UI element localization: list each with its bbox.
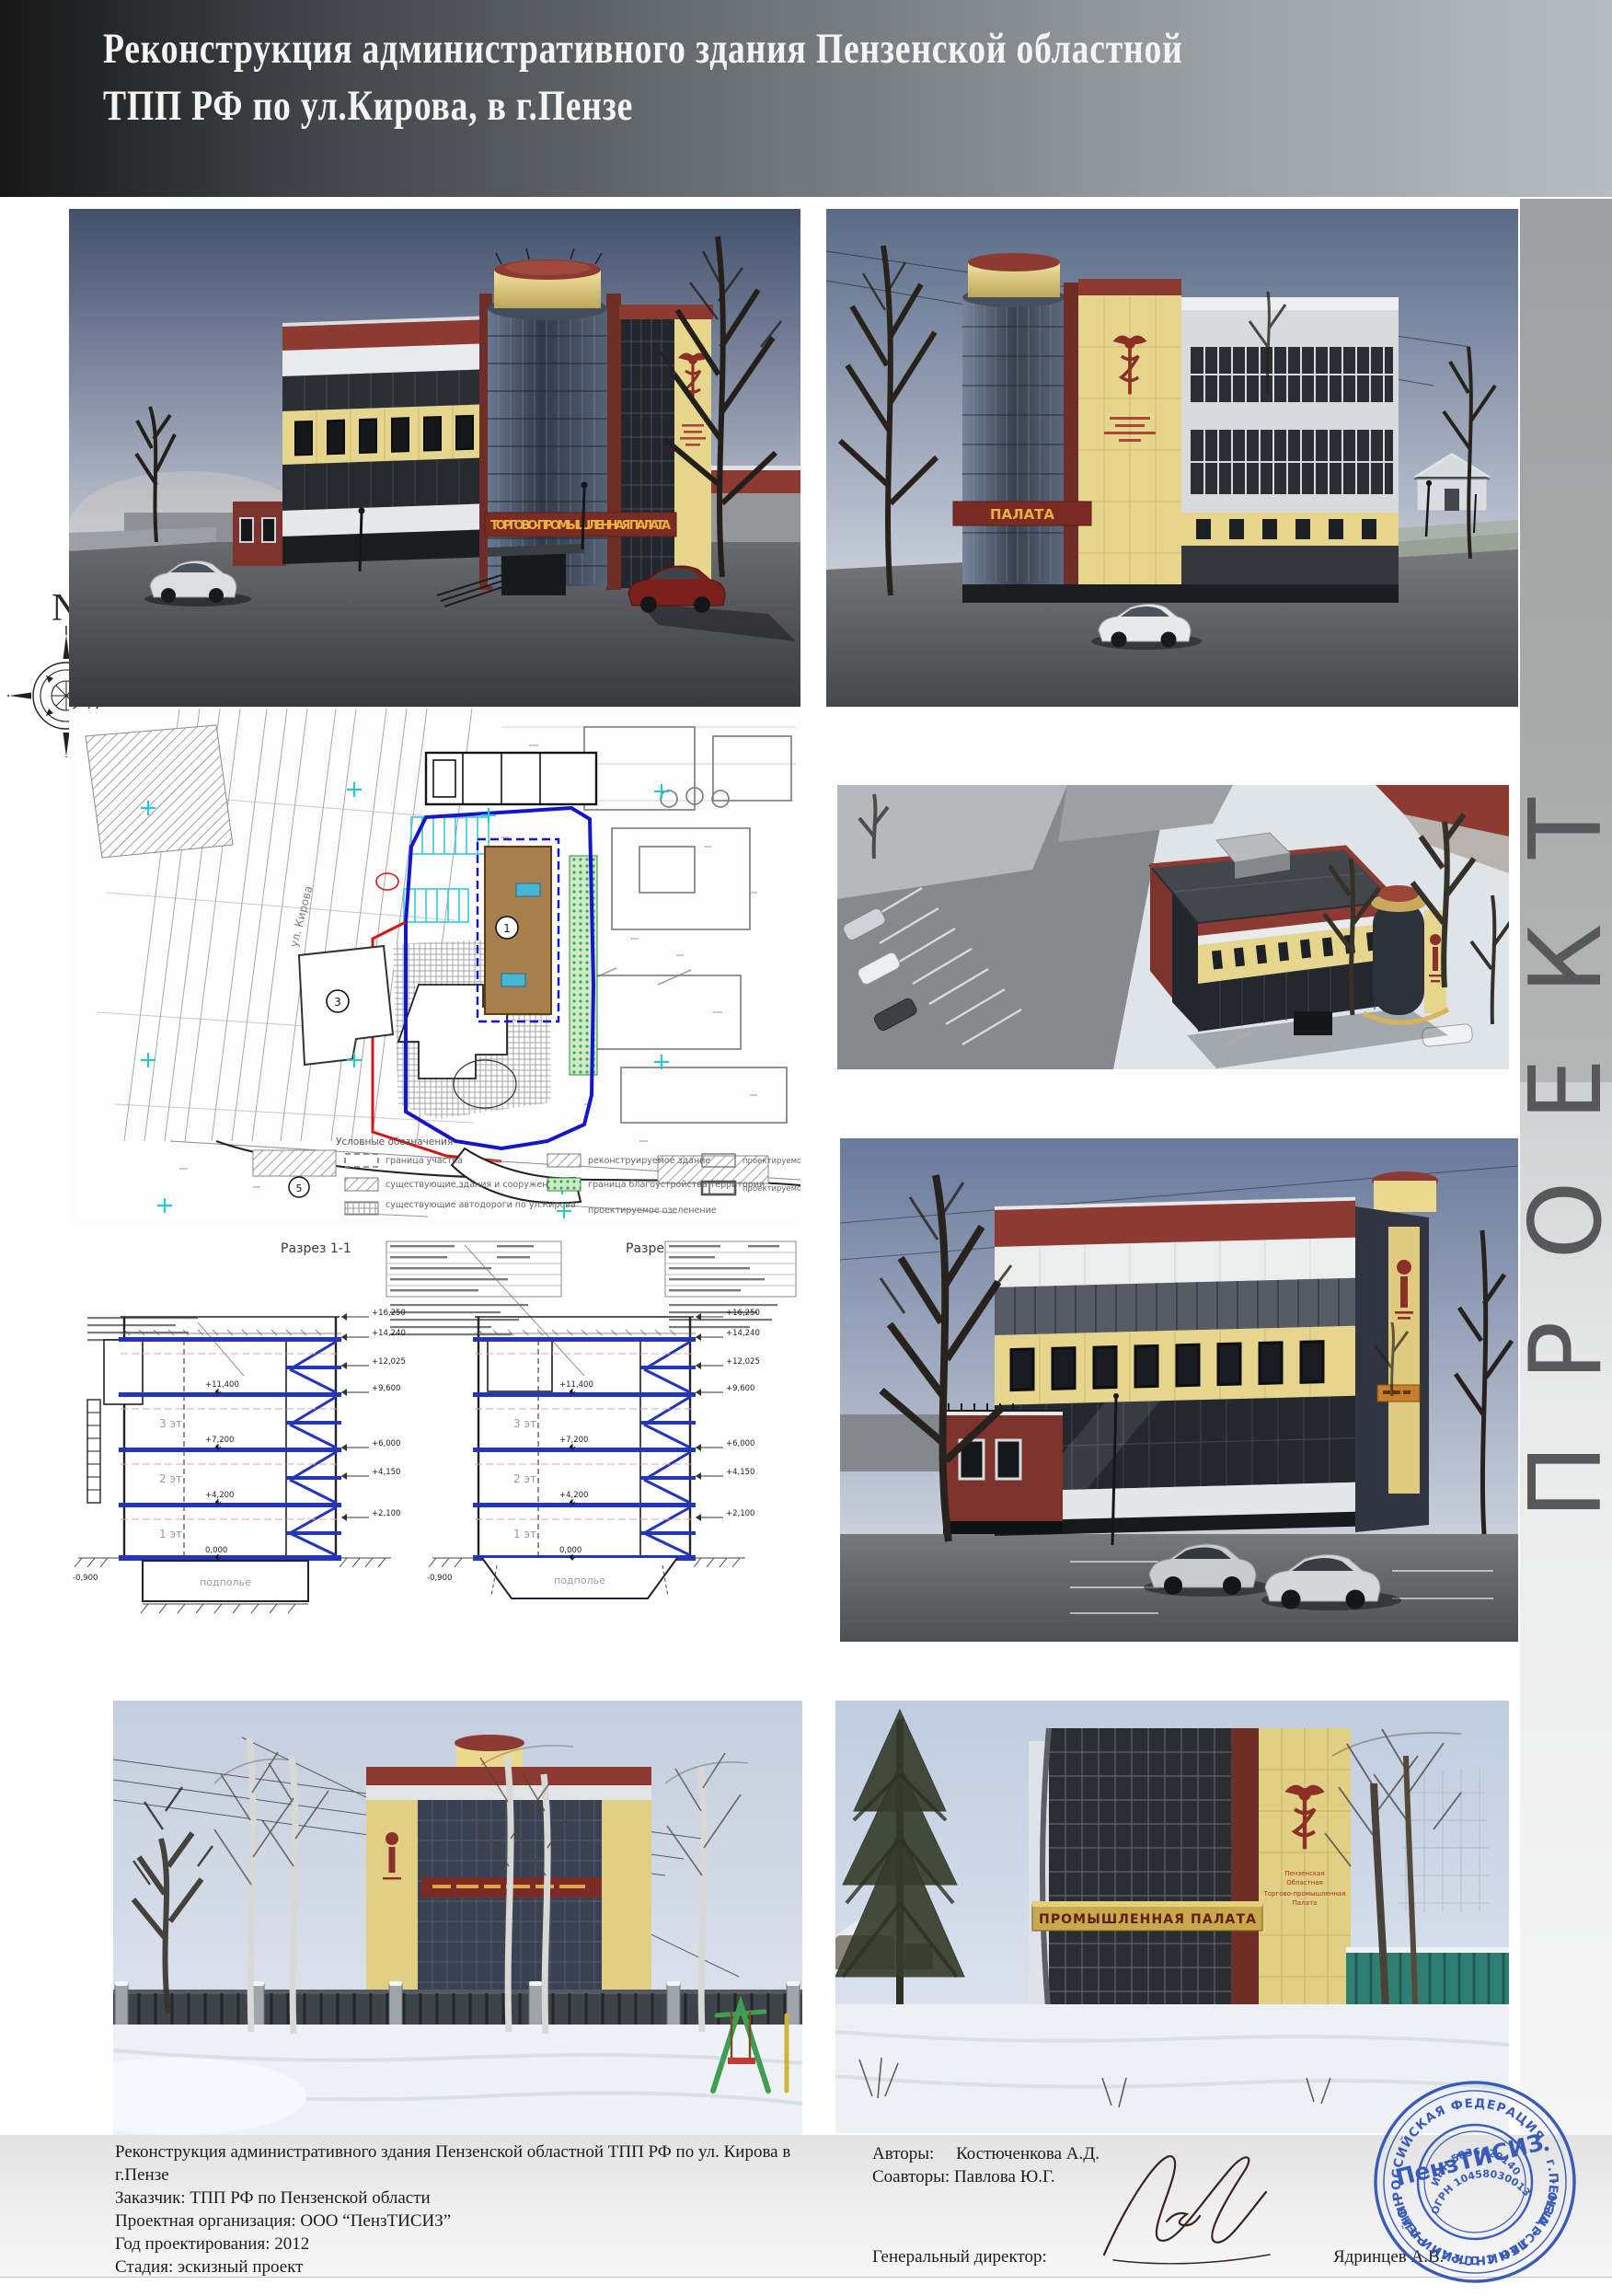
photo-montage-left — [113, 1701, 802, 2135]
render-front-view: ТОРГОВО-ПРОМЫШЛЕННАЯ ПАЛАТА — [69, 209, 800, 707]
footer-customer: Заказчик: ТПП РФ по Пензенской области — [115, 2186, 879, 2209]
proekt-letter-e: Е — [1509, 1042, 1612, 1137]
svg-text:Палата: Палата — [1293, 1899, 1318, 1907]
existing-buildings — [426, 753, 596, 804]
svg-text:+11,400: +11,400 — [559, 1380, 593, 1390]
svg-text:+4,200: +4,200 — [559, 1491, 588, 1500]
svg-text:+12,025: +12,025 — [372, 1357, 406, 1367]
hatched-block — [86, 725, 233, 858]
background-buildings — [840, 1414, 950, 1471]
sections-drawings: Разрез 1-1 Разрез 2-2 — [69, 1238, 800, 1689]
footer-project-info: Реконструкция административного здания П… — [115, 2140, 879, 2279]
svg-text:0,000: 0,000 — [205, 1546, 227, 1555]
svg-text:2 эт: 2 эт — [513, 1472, 536, 1485]
svg-text:+14,240: +14,240 — [372, 1329, 406, 1338]
footer-org: Проектная организация: ООО “ПензТИСИЗ” — [115, 2209, 879, 2233]
page-title: Реконструкция административного здания П… — [103, 20, 1453, 134]
svg-text:+7,200: +7,200 — [559, 1436, 588, 1445]
signature — [1086, 2137, 1307, 2270]
svg-text:+11,400: +11,400 — [205, 1380, 239, 1390]
svg-text:+16,250: +16,250 — [726, 1309, 760, 1318]
svg-text:граница благоустройства террит: граница благоустройства территории — [588, 1180, 765, 1190]
footer-authors: Авторы: Костюченкова А.Д. — [872, 2142, 1100, 2165]
svg-text:+7,200: +7,200 — [205, 1436, 234, 1445]
svg-text:1 эт: 1 эт — [159, 1528, 182, 1540]
render-back-view: ПАЛАТА — [826, 209, 1518, 707]
footer-stage: Стадия: эскизный проект — [115, 2256, 879, 2279]
footer-director-label: Генеральный директор: — [872, 2245, 1047, 2268]
building-sign-text: ТОРГОВО-ПРОМЫШЛЕННАЯ ПАЛАТА — [490, 519, 671, 533]
svg-text:+2,100: +2,100 — [372, 1509, 400, 1518]
new-building-footprint: 1 — [478, 839, 558, 1021]
svg-text:+4,150: +4,150 — [372, 1468, 400, 1477]
svg-text:подполье: подполье — [200, 1576, 251, 1588]
svg-text:проектируемое озеленение: проектируемое озеленение — [588, 1206, 717, 1216]
svg-text:проектируемое здание: проектируемое здание — [743, 1184, 800, 1194]
fence-teal — [1346, 1947, 1509, 2004]
svg-text:+4,200: +4,200 — [205, 1491, 234, 1500]
svg-text:+16,250: +16,250 — [372, 1309, 406, 1318]
poster-page: Реконструкция административного здания П… — [0, 0, 1612, 2296]
render-aerial-view — [837, 785, 1509, 1069]
svg-text:проектируемое основание: проектируемое основание — [743, 1157, 800, 1166]
svg-text:3: 3 — [334, 996, 341, 1009]
svg-text:Пензенская: Пензенская — [1284, 1870, 1324, 1877]
svg-text:3 эт: 3 эт — [513, 1417, 536, 1430]
building-sign-text: ПАЛАТА — [990, 506, 1054, 523]
title-line-2: ТПП РФ по ул.Кирова, в г.Пензе — [103, 77, 633, 134]
svg-text:+2,100: +2,100 — [726, 1509, 754, 1518]
building-sign-text: ПРОМЫШЛЕННАЯ ПАЛАТА — [1039, 1912, 1256, 1927]
section-1-title: Разрез 1-1 — [281, 1241, 351, 1256]
svg-text:0,000: 0,000 — [559, 1546, 581, 1555]
footer-coauthors: Соавторы: Павлова Ю.Г. — [872, 2165, 1055, 2188]
svg-text:подполье: подполье — [554, 1575, 605, 1586]
legend-title: Условные обозначения — [336, 1136, 453, 1148]
svg-text:2 эт: 2 эт — [159, 1472, 182, 1485]
svg-text:+14,240: +14,240 — [726, 1329, 760, 1338]
svg-text:реконструируемое здание: реконструируемое здание — [588, 1156, 710, 1166]
svg-text:-0,900: -0,900 — [427, 1574, 452, 1583]
footer-line-1: Реконструкция административного здания П… — [115, 2140, 879, 2163]
header-bar: Реконструкция административного здания П… — [0, 0, 1612, 197]
building-montage: Пензенская Областная Торгово-промышленна… — [1029, 1728, 1351, 2032]
svg-text:1 эт: 1 эт — [513, 1528, 536, 1540]
authors-name: Костюченкова А.Д. — [956, 2144, 1100, 2163]
title-line-1: Реконструкция административного здания П… — [103, 20, 1183, 77]
svg-text:-0,900: -0,900 — [73, 1574, 98, 1583]
render-side-view — [840, 1138, 1518, 1642]
proekt-letter-r: Р — [1509, 1303, 1612, 1399]
authors-label: Авторы: — [872, 2144, 934, 2163]
proekt-letter-p: П — [1509, 1434, 1612, 1529]
proekt-letter-o: О — [1509, 1172, 1612, 1268]
svg-text:+9,600: +9,600 — [726, 1384, 754, 1393]
svg-text:существующие здания и сооружен: существующие здания и сооружения — [386, 1180, 558, 1190]
site-plan-legend: Условные обозначения граница участка сущ… — [69, 1134, 800, 1235]
svg-text:граница участка: граница участка — [386, 1156, 463, 1166]
svg-text:3 эт: 3 эт — [159, 1417, 182, 1430]
svg-text:Областная: Областная — [1286, 1879, 1323, 1886]
proekt-letter-k: К — [1509, 911, 1612, 1007]
proekt-letter-t: Т — [1509, 780, 1612, 876]
building-back: ПАЛАТА — [953, 253, 1399, 603]
building-side — [943, 1171, 1438, 1536]
stamp-seal: РОССИЙСКАЯ ФЕДЕРАЦИЯ • г.ПЕНЗА • ЛЕНИНСК… — [1360, 2067, 1590, 2296]
svg-text:существующие автодороги по ул.: существующие автодороги по ул.Кирова — [386, 1200, 576, 1210]
svg-text:+4,150: +4,150 — [726, 1468, 754, 1477]
svg-text:Торгово-промышленная: Торгово-промышленная — [1263, 1890, 1346, 1898]
svg-text:+6,000: +6,000 — [726, 1439, 754, 1448]
svg-text:+9,600: +9,600 — [372, 1384, 400, 1393]
footer-line-2: г.Пензе — [115, 2163, 879, 2186]
svg-text:+12,025: +12,025 — [726, 1357, 760, 1367]
svg-text:+6,000: +6,000 — [372, 1439, 400, 1448]
footer-year: Год проектирования: 2012 — [115, 2233, 879, 2256]
building-number-1: 1 — [503, 922, 511, 935]
